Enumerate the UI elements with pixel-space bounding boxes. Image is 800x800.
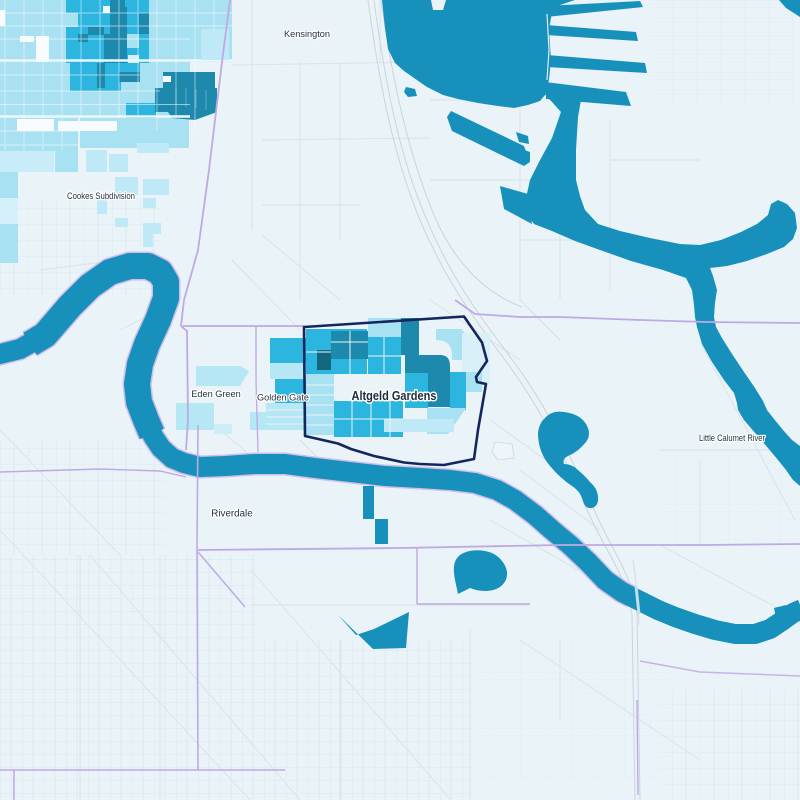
svg-text:Kensington: Kensington xyxy=(284,29,330,39)
svg-text:Altgeld Gardens: Altgeld Gardens xyxy=(352,388,437,403)
svg-text:Riverdale: Riverdale xyxy=(211,509,253,520)
svg-text:Little Calumet River: Little Calumet River xyxy=(699,433,765,443)
svg-text:Eden Green: Eden Green xyxy=(191,389,241,399)
svg-text:Golden Gate: Golden Gate xyxy=(257,393,309,403)
svg-text:Cookes Subdivision: Cookes Subdivision xyxy=(67,191,135,201)
